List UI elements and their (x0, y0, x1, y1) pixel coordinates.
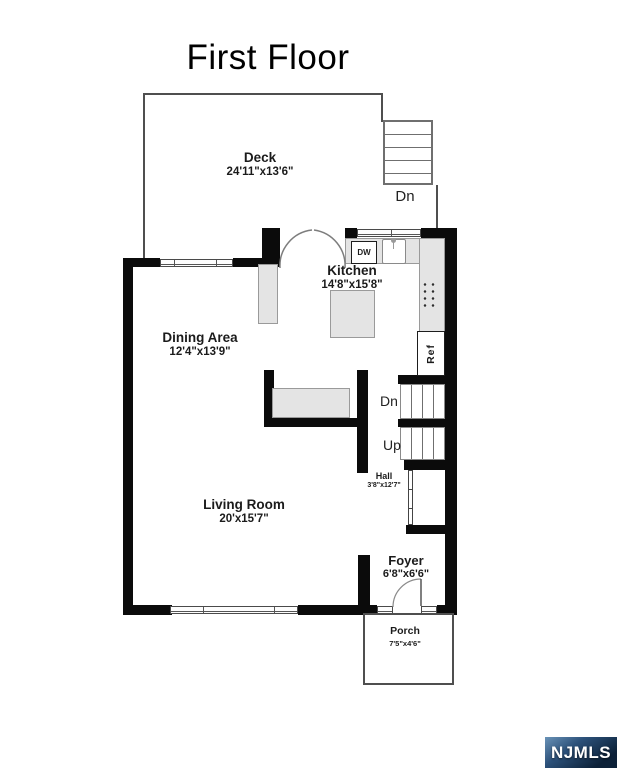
deck-label: Deck 24'11"x13'6" (190, 150, 330, 179)
kitchen-window (357, 229, 421, 237)
deck-outline-right (381, 93, 383, 122)
kitchen-dims: 14'8"x15'8" (292, 279, 412, 293)
wall-right (445, 228, 457, 615)
wall-kitchen-top-1 (345, 228, 357, 238)
porch-dims: 7'5"x4'6" (365, 640, 445, 649)
basement-stairs (400, 384, 445, 419)
wall-closet-top (404, 460, 457, 470)
floorplan-canvas: First Floor Dn DW Ref (0, 0, 617, 768)
dining-dims: 12'4"x13'9" (130, 346, 270, 360)
foyer-dims: 6'8"x6'6" (366, 568, 446, 581)
wall-dining-top-1 (123, 258, 160, 267)
wall-peninsula-horizontal (264, 418, 365, 427)
deck-name: Deck (190, 150, 330, 166)
stove-burners-icon (421, 281, 438, 308)
living-dims: 20'x15'7" (174, 513, 314, 527)
kitchen-counter-left (258, 264, 278, 324)
dining-window (160, 259, 233, 267)
dining-name: Dining Area (130, 330, 270, 346)
njmls-watermark: NJMLS (545, 737, 617, 768)
kitchen-name: Kitchen (292, 263, 412, 279)
page-title: First Floor (98, 38, 438, 78)
deck-stairs (383, 120, 433, 185)
deck-stairs-down-label: Dn (390, 188, 420, 206)
dishwasher: DW (351, 241, 377, 264)
deck-outline-top (143, 93, 383, 95)
up-stairs (400, 427, 445, 460)
kitchen-label: Kitchen 14'8"x15'8" (292, 263, 412, 292)
porch-name: Porch (365, 625, 445, 637)
living-name: Living Room (174, 497, 314, 513)
kitchen-island (330, 290, 375, 338)
deck-outline-left (143, 93, 145, 258)
refrigerator: Ref (417, 331, 445, 376)
peninsula-counter (272, 388, 350, 418)
dining-label: Dining Area 12'4"x13'9" (130, 330, 270, 359)
up-stairs-label: Up (379, 437, 405, 454)
deck-dims: 24'11"x13'6" (190, 166, 330, 180)
dishwasher-label: DW (357, 248, 370, 257)
wall-stairs-divider (398, 419, 445, 427)
hall-dims: 3'8"x12'7" (354, 482, 414, 490)
living-label: Living Room 20'x15'7" (174, 497, 314, 526)
hall-label: Hall 3'8"x12'7" (354, 471, 414, 490)
door-arcs (0, 0, 617, 768)
sink-icon (382, 239, 406, 264)
front-door-arc (393, 579, 421, 607)
deck-stairs-connector (436, 185, 438, 230)
njmls-watermark-text: NJMLS (551, 743, 611, 763)
wall-bottom-1 (123, 605, 172, 615)
hall-name: Hall (354, 471, 414, 482)
wall-deck-door-column (262, 228, 280, 267)
faucet-stem (393, 242, 394, 249)
basement-stairs-label: Dn (376, 393, 402, 410)
foyer-name: Foyer (366, 553, 446, 568)
porch-label: Porch 7'5"x4'6" (365, 625, 445, 649)
wall-left (123, 258, 133, 615)
refrigerator-label: Ref (425, 344, 437, 364)
living-window (170, 606, 298, 614)
wall-below-ref (398, 375, 445, 384)
foyer-label: Foyer 6'8"x6'6" (366, 553, 446, 581)
wall-closet-bottom (406, 525, 445, 534)
